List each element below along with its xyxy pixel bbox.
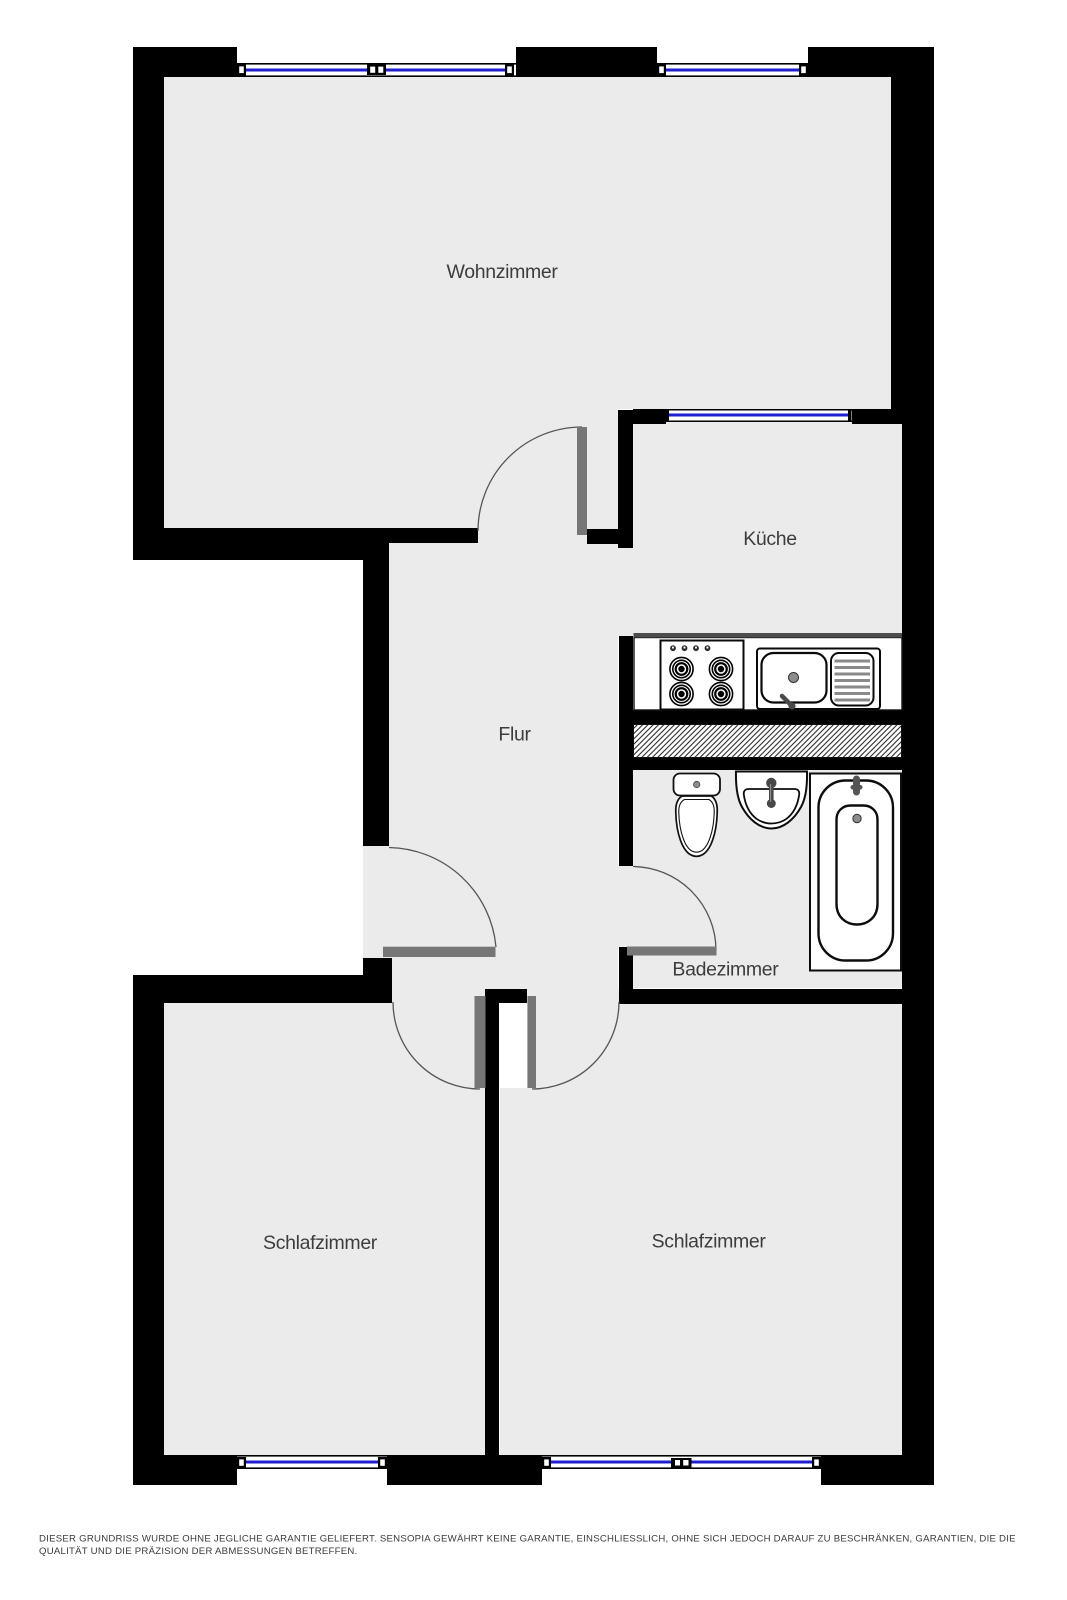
svg-text:Schlafzimmer: Schlafzimmer [652, 1231, 767, 1253]
svg-text:Schlafzimmer: Schlafzimmer [263, 1232, 378, 1254]
svg-text:Wohnzimmer: Wohnzimmer [447, 261, 559, 283]
svg-text:DIESER GRUNDRISS WURDE OHNE JE: DIESER GRUNDRISS WURDE OHNE JEGLICHE GAR… [39, 1534, 1016, 1545]
svg-text:Küche: Küche [743, 528, 797, 550]
svg-text:QUALITÄT UND DIE PRÄZISION DER: QUALITÄT UND DIE PRÄZISION DER ABMESSUNG… [39, 1546, 358, 1557]
svg-text:Flur: Flur [498, 724, 531, 746]
svg-text:Badezimmer: Badezimmer [672, 959, 779, 981]
